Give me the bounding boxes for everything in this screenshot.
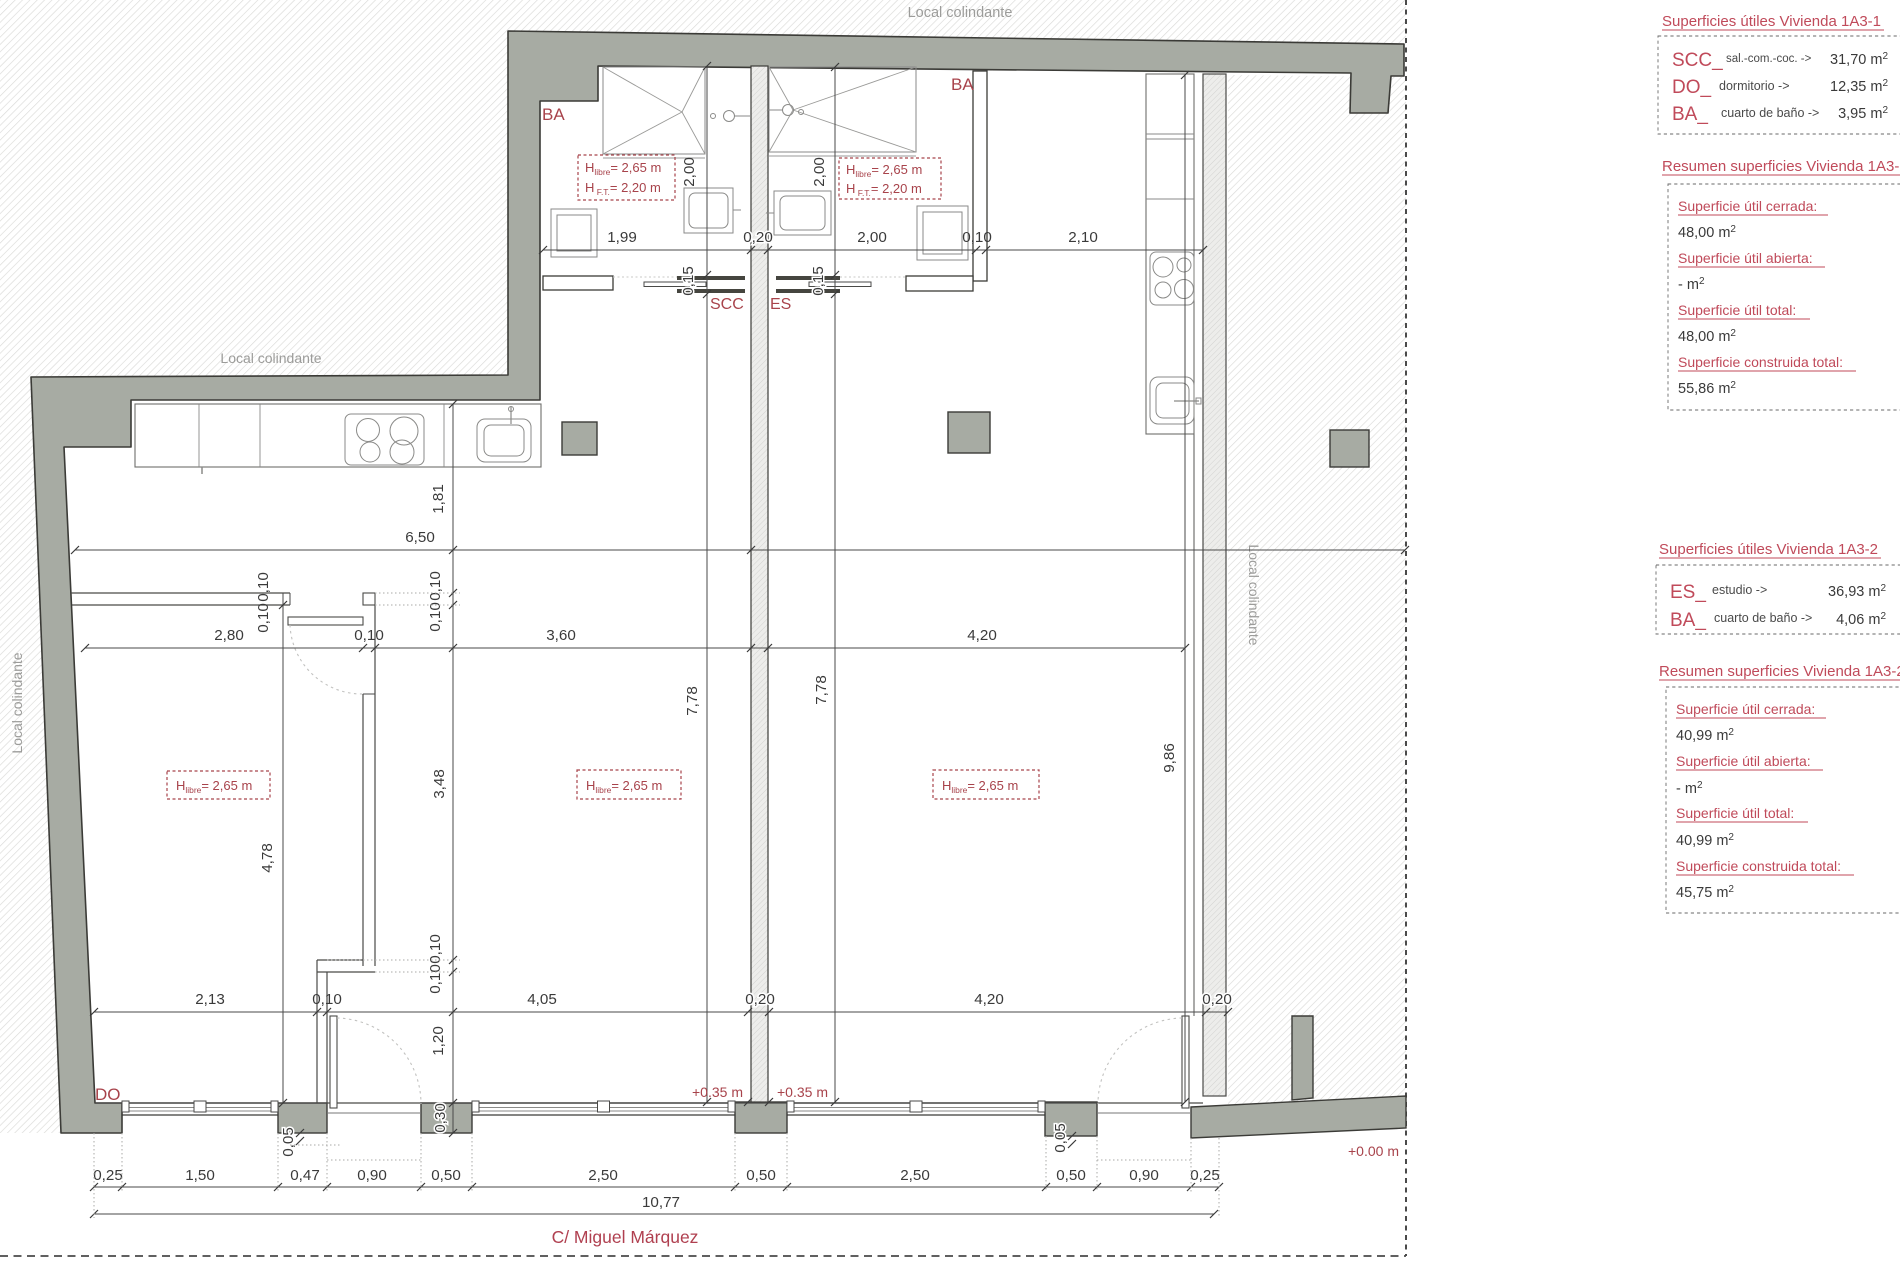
svg-text:4,20: 4,20 xyxy=(974,991,1004,1008)
svg-text:Superficie útil cerrada:: Superficie útil cerrada: xyxy=(1676,701,1815,717)
svg-text:ES: ES xyxy=(770,296,791,313)
svg-text:BA: BA xyxy=(542,105,565,124)
svg-text:Superficie útil cerrada:: Superficie útil cerrada: xyxy=(1678,198,1817,214)
svg-text:+0.35 m: +0.35 m xyxy=(692,1084,743,1100)
svg-text:0,30: 0,30 xyxy=(432,1103,449,1133)
svg-text:0,10: 0,10 xyxy=(427,964,444,994)
svg-text:0,15: 0,15 xyxy=(810,266,827,296)
svg-text:Superficies útiles Vivienda 1A: Superficies útiles Vivienda 1A3-2 xyxy=(1659,541,1878,558)
svg-text:+0.35 m: +0.35 m xyxy=(777,1084,828,1100)
svg-text:3,60: 3,60 xyxy=(546,627,576,644)
svg-text:0,20: 0,20 xyxy=(743,229,773,246)
svg-text:1,50: 1,50 xyxy=(185,1167,215,1184)
svg-text:0,50: 0,50 xyxy=(431,1167,461,1184)
svg-text:40,99 m2: 40,99 m2 xyxy=(1676,832,1734,849)
svg-text:Resumen superficies Vivienda 1: Resumen superficies Vivienda 1A3-1 xyxy=(1662,158,1900,175)
svg-text:BA_: BA_ xyxy=(1672,104,1708,125)
svg-text:cuarto de baño ->: cuarto de baño -> xyxy=(1714,611,1812,625)
svg-text:3,95 m2: 3,95 m2 xyxy=(1838,105,1888,122)
svg-text:4,05: 4,05 xyxy=(527,991,557,1008)
svg-text:Resumen superficies Vivienda 1: Resumen superficies Vivienda 1A3-2 xyxy=(1659,663,1900,680)
svg-text:48,00 m2: 48,00 m2 xyxy=(1678,224,1736,241)
svg-text:0,50: 0,50 xyxy=(1056,1167,1086,1184)
svg-text:BA_: BA_ xyxy=(1670,610,1706,631)
svg-text:0,20: 0,20 xyxy=(1202,991,1232,1008)
svg-text:2,10: 2,10 xyxy=(1068,229,1098,246)
svg-text:1,81: 1,81 xyxy=(430,484,447,514)
svg-text:12,35 m2: 12,35 m2 xyxy=(1830,78,1888,95)
svg-text:4,78: 4,78 xyxy=(259,843,276,873)
svg-text:Superficie construida total:: Superficie construida total: xyxy=(1678,354,1843,370)
svg-text:0,10: 0,10 xyxy=(427,934,444,964)
svg-text:0,10: 0,10 xyxy=(962,229,992,246)
svg-text:estudio ->: estudio -> xyxy=(1712,583,1767,597)
svg-text:40,99 m2: 40,99 m2 xyxy=(1676,727,1734,744)
svg-text:BA: BA xyxy=(951,75,974,94)
svg-text:1,99: 1,99 xyxy=(607,229,637,246)
svg-text:C/ Miguel Márquez: C/ Miguel Márquez xyxy=(552,1227,699,1247)
svg-text:48,00 m2: 48,00 m2 xyxy=(1678,328,1736,345)
svg-text:0,05: 0,05 xyxy=(280,1127,297,1157)
svg-text:4,20: 4,20 xyxy=(967,627,997,644)
svg-text:0,50: 0,50 xyxy=(746,1167,776,1184)
svg-text:sal.-com.-coc. ->: sal.-com.-coc. -> xyxy=(1726,53,1812,65)
svg-text:0,90: 0,90 xyxy=(1129,1167,1159,1184)
svg-text:0,90: 0,90 xyxy=(357,1167,387,1184)
svg-text:0,10: 0,10 xyxy=(427,571,444,601)
svg-text:9,86: 9,86 xyxy=(1161,743,1178,773)
svg-text:SCC_: SCC_ xyxy=(1672,50,1723,71)
svg-text:+0.00 m: +0.00 m xyxy=(1348,1143,1399,1159)
svg-text:7,78: 7,78 xyxy=(684,686,701,716)
svg-text:Superficie construida total:: Superficie construida total: xyxy=(1676,858,1841,874)
svg-text:0,10: 0,10 xyxy=(255,603,272,633)
svg-text:1,20: 1,20 xyxy=(430,1026,447,1056)
svg-text:10,77: 10,77 xyxy=(642,1194,680,1211)
svg-text:2,50: 2,50 xyxy=(588,1167,618,1184)
svg-text:Superficie útil total:: Superficie útil total: xyxy=(1678,302,1796,318)
svg-text:6,50: 6,50 xyxy=(405,529,435,546)
svg-text:DO: DO xyxy=(95,1085,121,1104)
svg-text:cuarto de baño ->: cuarto de baño -> xyxy=(1721,106,1819,120)
svg-text:0,10: 0,10 xyxy=(255,572,272,602)
svg-text:2,50: 2,50 xyxy=(900,1167,930,1184)
svg-text:Local colindante: Local colindante xyxy=(908,5,1013,21)
svg-text:Local colindante: Local colindante xyxy=(1246,544,1262,645)
svg-text:0,25: 0,25 xyxy=(93,1167,123,1184)
svg-text:DO_: DO_ xyxy=(1672,77,1712,98)
svg-text:Superficie útil total:: Superficie útil total: xyxy=(1676,805,1794,821)
svg-text:Superficie útil abierta:: Superficie útil abierta: xyxy=(1678,250,1813,266)
svg-text:2,00: 2,00 xyxy=(681,157,698,187)
svg-text:dormitorio ->: dormitorio -> xyxy=(1719,79,1790,93)
svg-text:SCC: SCC xyxy=(710,296,744,313)
svg-text:Local colindante: Local colindante xyxy=(220,350,321,366)
svg-text:Local colindante: Local colindante xyxy=(9,652,25,753)
svg-text:0,15: 0,15 xyxy=(680,266,697,296)
svg-text:2,00: 2,00 xyxy=(857,229,887,246)
svg-text:0,25: 0,25 xyxy=(1190,1167,1220,1184)
svg-text:0,10: 0,10 xyxy=(312,991,342,1008)
svg-text:7,78: 7,78 xyxy=(813,675,830,705)
svg-text:2,00: 2,00 xyxy=(811,157,828,187)
svg-text:0,20: 0,20 xyxy=(745,991,775,1008)
svg-text:36,93 m2: 36,93 m2 xyxy=(1828,583,1886,600)
svg-text:0,10: 0,10 xyxy=(427,602,444,632)
svg-text:2,13: 2,13 xyxy=(195,991,225,1008)
svg-text:3,48: 3,48 xyxy=(431,769,448,799)
svg-text:45,75 m2: 45,75 m2 xyxy=(1676,884,1734,901)
svg-text:ES_: ES_ xyxy=(1670,582,1706,603)
svg-text:0,47: 0,47 xyxy=(290,1167,320,1184)
svg-text:0,10: 0,10 xyxy=(354,627,384,644)
svg-text:Superficies útiles Vivienda 1A: Superficies útiles Vivienda 1A3-1 xyxy=(1662,13,1881,30)
svg-text:Superficie útil abierta:: Superficie útil abierta: xyxy=(1676,753,1811,769)
svg-text:0,05: 0,05 xyxy=(1052,1123,1069,1153)
svg-text:55,86 m2: 55,86 m2 xyxy=(1678,380,1736,397)
svg-text:4,06 m2: 4,06 m2 xyxy=(1836,611,1886,628)
svg-text:31,70 m2: 31,70 m2 xyxy=(1830,51,1888,68)
svg-text:2,80: 2,80 xyxy=(214,627,244,644)
